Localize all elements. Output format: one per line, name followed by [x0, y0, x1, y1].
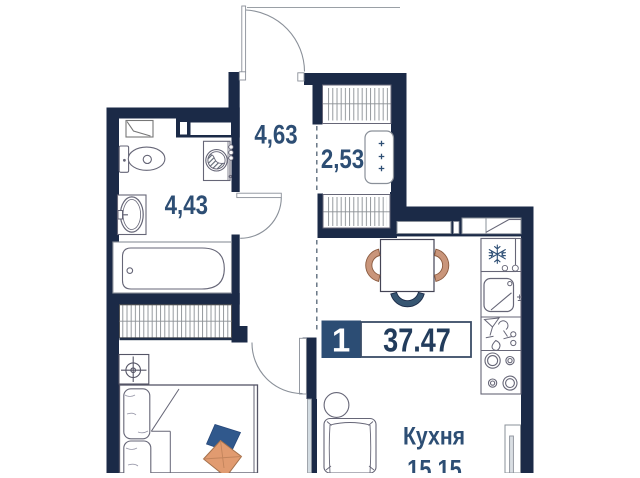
svg-text:2,53: 2,53: [321, 145, 364, 174]
svg-text:Кухня: Кухня: [403, 422, 465, 450]
svg-text:4,43: 4,43: [165, 191, 208, 220]
svg-text:15,15: 15,15: [407, 455, 462, 473]
svg-text:1: 1: [332, 322, 350, 359]
svg-text:37.47: 37.47: [383, 323, 451, 359]
svg-text:4,63: 4,63: [254, 121, 297, 150]
